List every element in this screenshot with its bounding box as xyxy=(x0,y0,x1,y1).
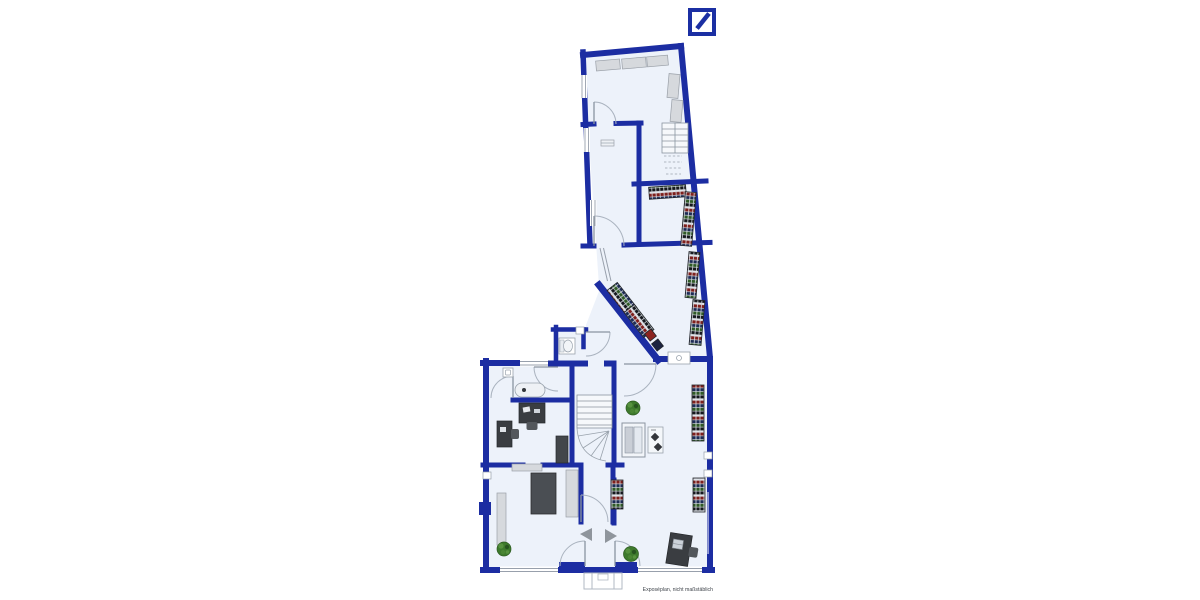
counter xyxy=(622,57,647,69)
wall-marker xyxy=(704,452,712,459)
plant xyxy=(624,547,639,562)
window xyxy=(520,360,548,367)
plant xyxy=(497,542,511,556)
floor-plan-canvas: Exposéplan, nicht maßstäblich xyxy=(0,0,1200,600)
shelf-unit xyxy=(693,478,705,512)
caption: Exposéplan, nicht maßstäblich xyxy=(643,587,713,593)
toilet xyxy=(559,338,575,354)
wall-sink-box xyxy=(503,368,513,377)
counter xyxy=(670,100,683,123)
counter xyxy=(667,74,680,99)
window xyxy=(500,567,558,574)
sink-counter xyxy=(668,352,690,364)
porch-outline xyxy=(584,573,622,589)
window xyxy=(581,75,588,98)
cabinet xyxy=(556,436,568,463)
meeting-table xyxy=(531,473,556,514)
window xyxy=(638,567,702,574)
deutsche-bank-logo xyxy=(690,10,714,34)
counter xyxy=(566,470,578,517)
small-stand xyxy=(648,427,663,453)
radiator xyxy=(601,140,614,146)
watermark-strip xyxy=(707,492,708,554)
window xyxy=(590,200,597,226)
shelf-unit xyxy=(611,480,623,509)
wall-marker xyxy=(483,472,491,479)
window xyxy=(584,128,591,152)
wall-marker xyxy=(704,470,712,477)
shelf-unit xyxy=(692,385,704,441)
counter xyxy=(497,493,506,545)
floor-plan-page: Exposéplan, nicht maßstäblich xyxy=(0,0,1200,600)
wall-marker xyxy=(576,327,584,334)
shelf-unit xyxy=(649,185,687,200)
counter xyxy=(596,59,621,71)
reception-desk xyxy=(515,383,545,397)
counter xyxy=(512,464,542,471)
counter xyxy=(647,55,669,67)
plant xyxy=(626,401,640,415)
display-case xyxy=(622,423,645,457)
